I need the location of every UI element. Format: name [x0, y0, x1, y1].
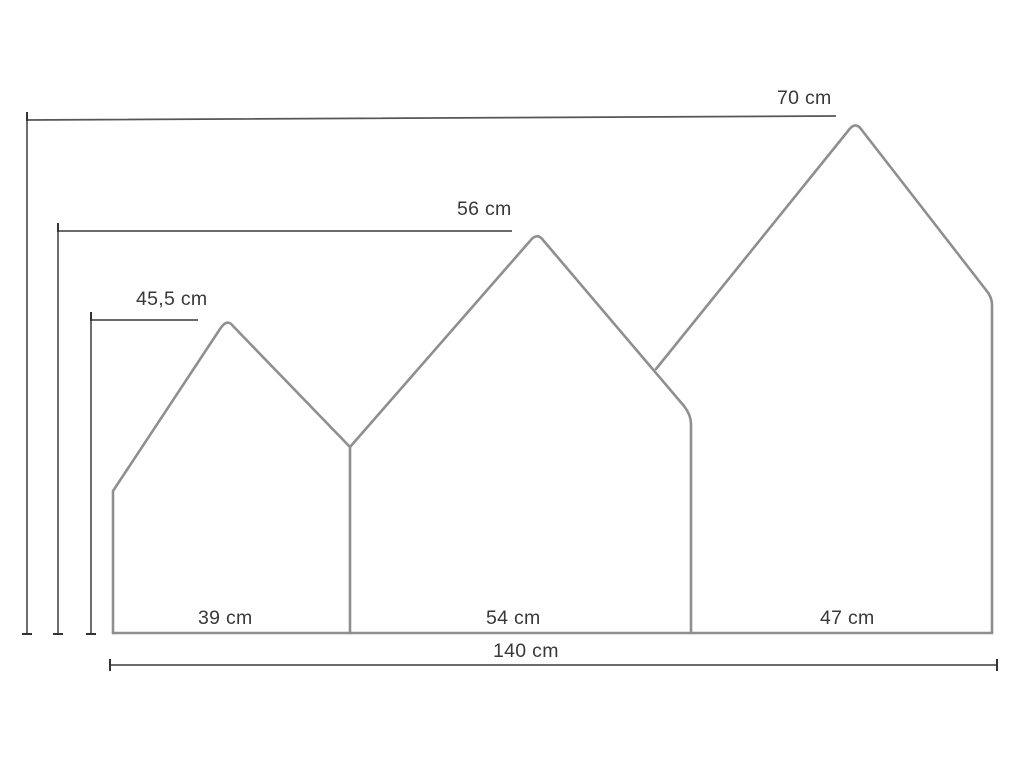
- dimension-labels: 70 cm 56 cm 45,5 cm 39 cm 54 cm 47 cm 14…: [136, 87, 875, 662]
- width-label-left-panel: 39 cm: [198, 607, 253, 629]
- height-label-right-panel: 70 cm: [777, 87, 832, 109]
- height-label-left-panel: 45,5 cm: [136, 288, 207, 310]
- right-panel-outline: [656, 125, 992, 633]
- dimension-ticks: [22, 112, 997, 671]
- width-label-right-panel: 47 cm: [820, 607, 875, 629]
- total-width-label: 140 cm: [493, 640, 559, 662]
- panel-outlines: [113, 125, 992, 633]
- dimension-lines: [27, 116, 997, 665]
- height-dimension-line-70cm: [27, 116, 836, 634]
- middle-panel-outline: [350, 236, 691, 633]
- height-dimension-line-45-5cm: [91, 320, 198, 634]
- height-dimension-line-56cm: [58, 231, 512, 634]
- left-panel-outline: [113, 323, 350, 633]
- height-label-middle-panel: 56 cm: [457, 198, 512, 220]
- headboard-dimension-drawing: 70 cm 56 cm 45,5 cm 39 cm 54 cm 47 cm 14…: [0, 0, 1024, 768]
- dimension-drawing-canvas: 70 cm 56 cm 45,5 cm 39 cm 54 cm 47 cm 14…: [0, 0, 1024, 768]
- width-label-middle-panel: 54 cm: [486, 607, 541, 629]
